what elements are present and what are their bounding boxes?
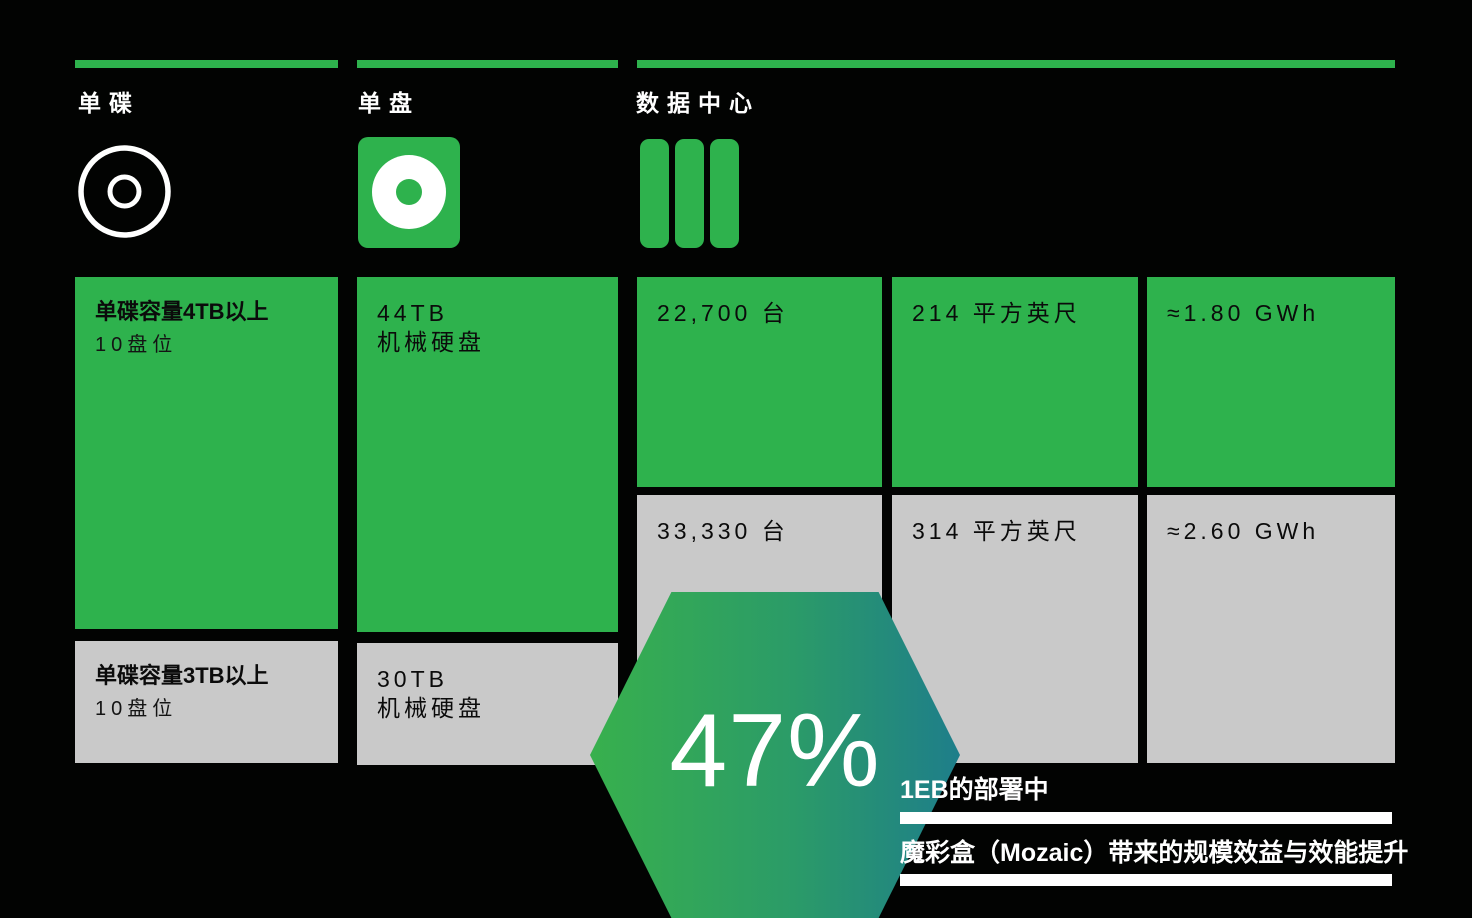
- card-dc-old-units-value: 33,330 台: [657, 517, 864, 546]
- card-platter-old-title: 单碟容量3TB以上: [95, 663, 320, 689]
- column-accent-bar-platter: [75, 60, 338, 68]
- column-accent-bar-datacenter: [637, 60, 1395, 68]
- card-dc-old-energy: ≈2.60 GWh: [1147, 495, 1395, 763]
- caption-line-deployment: 1EB的部署中: [900, 770, 1392, 806]
- card-dc-old-area-value: 314 平方英尺: [912, 517, 1120, 546]
- card-dc-new-area: 214 平方英尺: [892, 277, 1138, 487]
- card-platter-new-subtitle: 10盘位: [95, 328, 320, 357]
- server-rack-shape: [675, 139, 704, 248]
- highlight-percentage: 47%: [669, 692, 880, 811]
- caption-rule: [900, 812, 1392, 824]
- card-platter-old: 单碟容量3TB以上 10盘位: [75, 641, 338, 763]
- server-rack-shape: [710, 139, 739, 248]
- card-drive-new-capacity: 44TB: [377, 299, 600, 328]
- column-title-platter: 单碟: [78, 84, 140, 118]
- disc-platter-icon: [78, 145, 171, 238]
- card-drive-old-type: 机械硬盘: [377, 694, 600, 723]
- caption-rule: [900, 874, 1392, 886]
- drive-spindle-shape: [396, 179, 422, 205]
- column-title-datacenter: 数据中心: [636, 84, 760, 118]
- card-drive-new-type: 机械硬盘: [377, 328, 600, 357]
- server-racks-icon: [640, 139, 746, 248]
- card-drive-new: 44TB 机械硬盘: [357, 277, 618, 632]
- hard-drive-icon: [358, 137, 460, 248]
- card-drive-old: 30TB 机械硬盘: [357, 643, 618, 765]
- column-title-drive: 单盘: [358, 84, 420, 118]
- card-platter-new: 单碟容量4TB以上 10盘位: [75, 277, 338, 629]
- card-drive-old-capacity: 30TB: [377, 665, 600, 694]
- caption-line-mozaic: 魔彩盒（Mozaic）带来的规模效益与效能提升: [900, 833, 1392, 869]
- card-platter-old-subtitle: 10盘位: [95, 692, 320, 721]
- column-accent-bar-drive: [357, 60, 618, 68]
- server-rack-shape: [640, 139, 669, 248]
- card-dc-old-energy-value: ≈2.60 GWh: [1167, 517, 1377, 546]
- highlight-caption: 1EB的部署中 魔彩盒（Mozaic）带来的规模效益与效能提升: [900, 770, 1392, 886]
- card-platter-new-title: 单碟容量4TB以上: [95, 299, 320, 325]
- card-dc-new-energy: ≈1.80 GWh: [1147, 277, 1395, 487]
- infographic-canvas: 单碟 单盘 数据中心 单碟容量4TB以上 10盘位 44TB 机械硬盘 22,7…: [0, 0, 1472, 918]
- card-dc-new-units: 22,700 台: [637, 277, 882, 487]
- card-dc-new-area-value: 214 平方英尺: [912, 299, 1120, 328]
- card-dc-new-units-value: 22,700 台: [657, 299, 864, 328]
- card-dc-new-energy-value: ≈1.80 GWh: [1167, 299, 1377, 328]
